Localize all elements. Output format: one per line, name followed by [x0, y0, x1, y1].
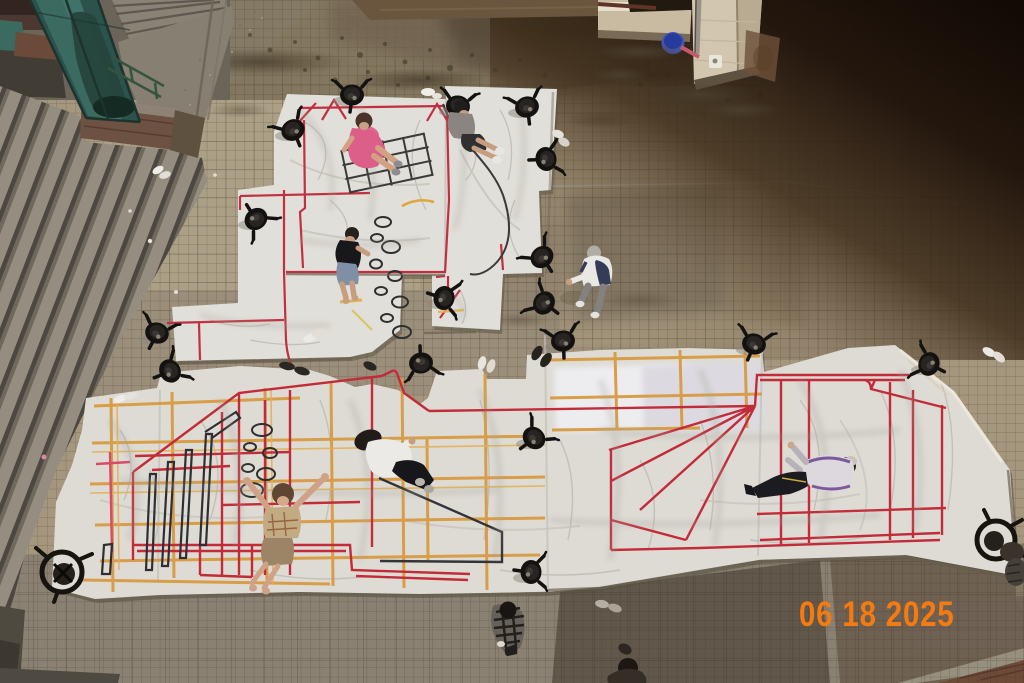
svg-text:06 18 2025: 06 18 2025	[799, 595, 955, 634]
